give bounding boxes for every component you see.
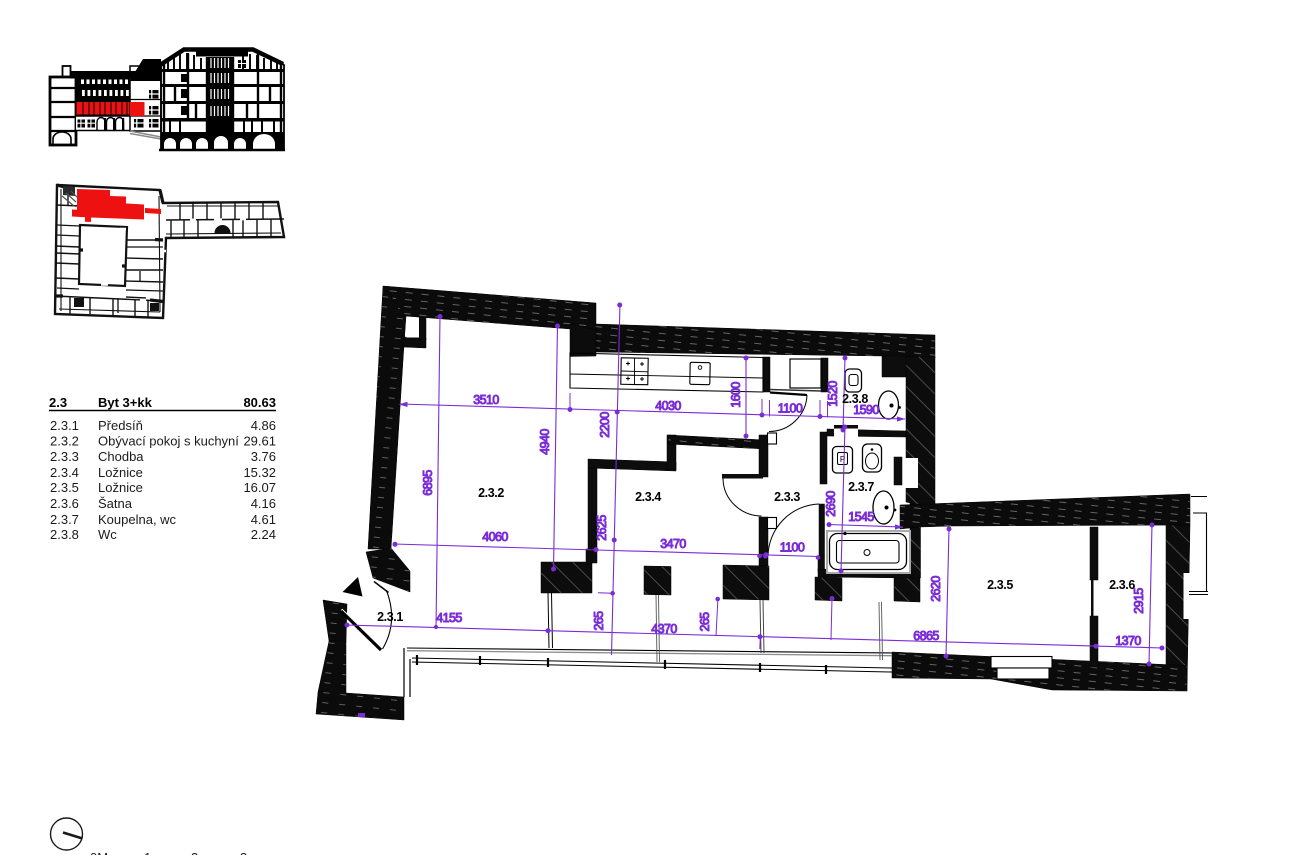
svg-text:2.3.7: 2.3.7 — [50, 512, 79, 527]
svg-text:1370: 1370 — [1115, 634, 1141, 648]
svg-text:2.3.8: 2.3.8 — [50, 527, 79, 542]
svg-text:1100: 1100 — [780, 541, 805, 555]
svg-text:2.3.3: 2.3.3 — [774, 490, 800, 504]
svg-text:2.3.2: 2.3.2 — [478, 486, 504, 500]
svg-text:15.32: 15.32 — [243, 465, 276, 480]
svg-text:4.61: 4.61 — [251, 512, 276, 527]
svg-text:2.3.4: 2.3.4 — [635, 490, 661, 504]
svg-text:2.3.5: 2.3.5 — [987, 578, 1013, 592]
svg-text:Ložnice: Ložnice — [98, 465, 143, 480]
svg-text:4.86: 4.86 — [251, 418, 276, 433]
svg-text:2.3: 2.3 — [49, 395, 67, 410]
svg-text:265: 265 — [592, 611, 606, 631]
svg-text:4060: 4060 — [482, 530, 508, 544]
svg-text:3: 3 — [240, 850, 247, 855]
svg-text:2.24: 2.24 — [251, 527, 276, 542]
svg-text:Předsíň: Předsíň — [98, 418, 143, 433]
svg-text:2.3.7: 2.3.7 — [848, 480, 874, 494]
svg-text:3.76: 3.76 — [251, 449, 276, 464]
svg-text:2.3.4: 2.3.4 — [50, 465, 79, 480]
svg-text:4030: 4030 — [655, 399, 681, 413]
svg-text:Ložnice: Ložnice — [98, 480, 143, 495]
svg-text:2.3.6: 2.3.6 — [50, 496, 79, 511]
svg-text:2.3.1: 2.3.1 — [377, 610, 403, 624]
svg-text:2.3.6: 2.3.6 — [1109, 578, 1135, 592]
svg-text:1545: 1545 — [848, 510, 874, 524]
svg-text:4940: 4940 — [538, 429, 552, 455]
svg-text:1600: 1600 — [729, 382, 743, 408]
svg-text:2200: 2200 — [598, 412, 612, 438]
svg-text:2.3.3: 2.3.3 — [50, 449, 79, 464]
svg-text:29.61: 29.61 — [243, 434, 276, 449]
svg-text:2690: 2690 — [824, 491, 838, 517]
svg-text:Koupelna, wc: Koupelna, wc — [98, 512, 177, 527]
svg-text:3510: 3510 — [473, 393, 499, 407]
svg-text:Obývací pokoj s kuchyní: Obývací pokoj s kuchyní — [98, 434, 239, 449]
svg-text:2625: 2625 — [595, 515, 609, 541]
svg-text:80.63: 80.63 — [243, 395, 276, 410]
svg-text:1520: 1520 — [826, 381, 840, 407]
svg-text:Šatna: Šatna — [98, 496, 133, 511]
svg-text:265: 265 — [698, 612, 712, 632]
svg-text:2.3.2: 2.3.2 — [50, 434, 79, 449]
svg-text:Wc: Wc — [98, 527, 117, 542]
svg-text:3470: 3470 — [660, 537, 686, 551]
svg-text:2.3.5: 2.3.5 — [50, 480, 79, 495]
svg-text:0M: 0M — [90, 850, 108, 855]
svg-text:16.07: 16.07 — [243, 480, 276, 495]
svg-text:6895: 6895 — [421, 470, 435, 496]
svg-text:1: 1 — [144, 850, 151, 855]
svg-text:2.3.1: 2.3.1 — [50, 418, 79, 433]
svg-text:6865: 6865 — [913, 629, 939, 643]
svg-text:2: 2 — [191, 850, 198, 855]
svg-text:4370: 4370 — [651, 622, 677, 636]
svg-text:Chodba: Chodba — [98, 449, 144, 464]
svg-text:4155: 4155 — [436, 611, 462, 625]
svg-text:2.3.8: 2.3.8 — [842, 392, 868, 406]
svg-text:2620: 2620 — [929, 576, 943, 602]
svg-text:4.16: 4.16 — [251, 496, 276, 511]
svg-text:Byt 3+kk: Byt 3+kk — [98, 395, 153, 410]
svg-text:1100: 1100 — [778, 402, 803, 416]
